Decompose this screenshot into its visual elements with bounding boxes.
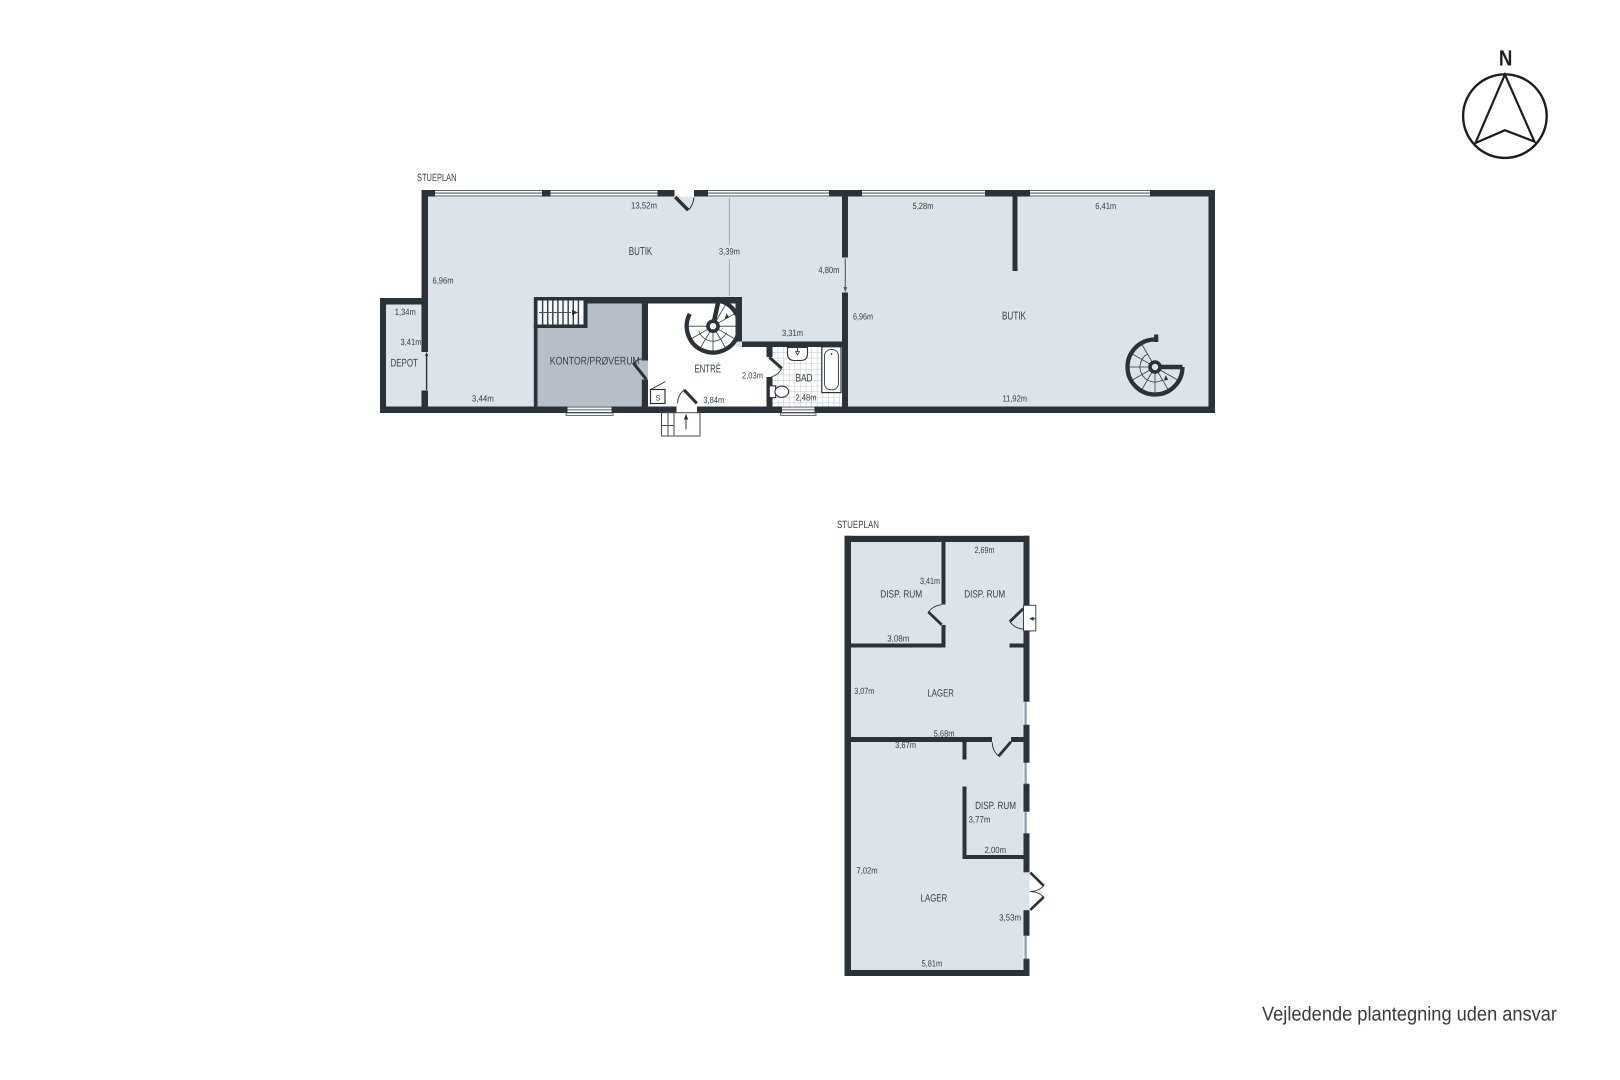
svg-text:6,41m: 6,41m <box>1095 201 1116 211</box>
svg-text:4,80m: 4,80m <box>818 265 839 275</box>
svg-text:ENTRÉ: ENTRÉ <box>694 363 721 376</box>
svg-text:3,84m: 3,84m <box>703 395 724 405</box>
svg-text:S: S <box>655 394 660 403</box>
svg-text:2,69m: 2,69m <box>975 545 995 555</box>
svg-text:3,53m: 3,53m <box>999 912 1021 922</box>
svg-text:DISP. RUM: DISP. RUM <box>964 588 1005 600</box>
svg-text:3,41m: 3,41m <box>401 337 422 347</box>
svg-text:DISP. RUM: DISP. RUM <box>975 800 1016 812</box>
svg-text:STUEPLAN: STUEPLAN <box>417 172 457 184</box>
svg-text:3,77m: 3,77m <box>969 814 991 824</box>
svg-text:Vejledende plantegning uden an: Vejledende plantegning uden ansvar <box>1262 1003 1557 1025</box>
svg-text:DEPOT: DEPOT <box>390 357 418 369</box>
svg-text:3,41m: 3,41m <box>920 576 940 586</box>
svg-text:5,81m: 5,81m <box>922 959 943 969</box>
svg-text:13,52m: 13,52m <box>631 201 657 211</box>
svg-text:5,28m: 5,28m <box>913 201 934 211</box>
svg-text:2,03m: 2,03m <box>742 370 763 380</box>
svg-text:3,07m: 3,07m <box>854 686 874 696</box>
svg-text:DISP. RUM: DISP. RUM <box>880 588 922 600</box>
svg-text:3,39m: 3,39m <box>719 246 740 256</box>
svg-text:3,44m: 3,44m <box>472 394 494 404</box>
svg-text:5,68m: 5,68m <box>934 729 955 739</box>
svg-text:N: N <box>1499 45 1513 70</box>
svg-text:6,96m: 6,96m <box>433 275 454 285</box>
svg-text:7,02m: 7,02m <box>857 866 878 876</box>
svg-text:2,48m: 2,48m <box>796 392 817 402</box>
svg-text:6,96m: 6,96m <box>853 312 873 322</box>
svg-text:3,31m: 3,31m <box>782 328 803 338</box>
svg-text:STUEPLAN: STUEPLAN <box>837 519 879 531</box>
svg-text:BUTIK: BUTIK <box>629 246 653 258</box>
svg-text:2,00m: 2,00m <box>985 845 1007 855</box>
svg-text:LAGER: LAGER <box>927 687 954 699</box>
svg-text:KONTOR/PRØVERUM: KONTOR/PRØVERUM <box>550 356 640 368</box>
svg-text:BAD: BAD <box>796 372 813 384</box>
svg-text:3,67m: 3,67m <box>895 740 916 750</box>
svg-text:LAGER: LAGER <box>921 892 948 904</box>
svg-text:BUTIK: BUTIK <box>1002 311 1026 323</box>
svg-text:1,34m: 1,34m <box>395 307 416 317</box>
svg-text:11,92m: 11,92m <box>1003 393 1028 403</box>
svg-text:3,08m: 3,08m <box>887 634 909 644</box>
